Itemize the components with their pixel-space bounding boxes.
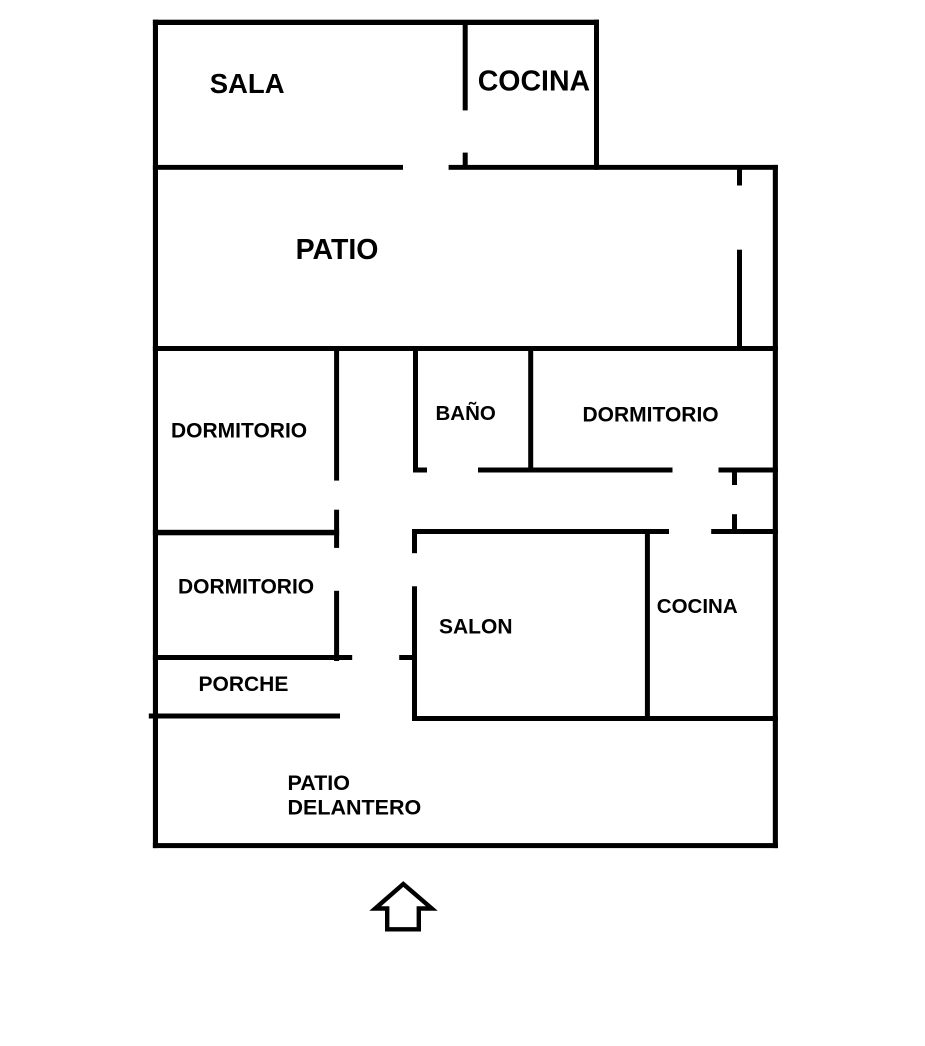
svg-text:COCINA: COCINA [478, 66, 590, 98]
svg-text:SALA: SALA [210, 68, 285, 99]
svg-text:SALON: SALON [439, 616, 513, 639]
svg-text:DELANTERO: DELANTERO [288, 795, 422, 819]
svg-text:DORMITORIO: DORMITORIO [171, 420, 307, 443]
svg-text:PATIO: PATIO [288, 771, 351, 795]
svg-text:DORMITORIO: DORMITORIO [178, 575, 314, 598]
svg-text:PORCHE: PORCHE [199, 673, 289, 696]
svg-text:PATIO: PATIO [296, 234, 379, 266]
svg-text:DORMITORIO: DORMITORIO [583, 403, 719, 426]
svg-text:BAÑO: BAÑO [436, 402, 496, 425]
svg-text:COCINA: COCINA [657, 595, 738, 618]
